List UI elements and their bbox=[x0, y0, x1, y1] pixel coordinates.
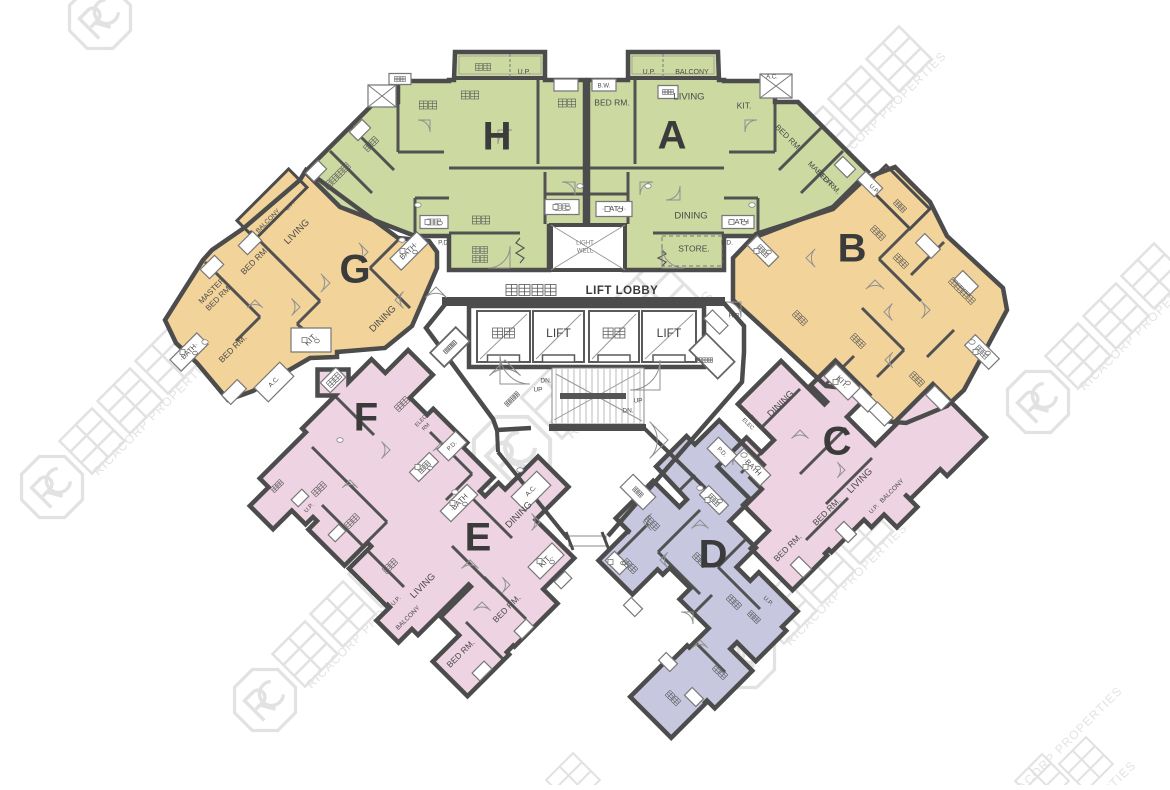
svg-text:LIFT: LIFT bbox=[657, 326, 682, 340]
svg-text:D: D bbox=[699, 533, 728, 577]
svg-text:E: E bbox=[465, 516, 492, 560]
svg-text:F: F bbox=[354, 396, 378, 440]
svg-text:STORE.: STORE. bbox=[678, 243, 710, 253]
svg-text:LIGHT: LIGHT bbox=[576, 241, 594, 247]
svg-text:WELL: WELL bbox=[577, 249, 594, 255]
svg-text:B.W.: B.W. bbox=[598, 84, 611, 90]
svg-text:LIFT LOBBY: LIFT LOBBY bbox=[586, 285, 659, 297]
svg-text:DN.: DN. bbox=[622, 408, 633, 415]
svg-text:UP: UP bbox=[633, 398, 642, 405]
svg-text:H: H bbox=[483, 115, 512, 159]
svg-text:P.D.: P.D. bbox=[438, 240, 450, 247]
svg-text:KIT.: KIT. bbox=[737, 100, 752, 110]
svg-text:DINING: DINING bbox=[674, 211, 707, 222]
svg-text:LIVING: LIVING bbox=[673, 92, 704, 103]
svg-text:DN.: DN. bbox=[540, 378, 551, 385]
svg-text:A.C.: A.C. bbox=[766, 75, 778, 81]
svg-text:U.P.: U.P. bbox=[643, 69, 656, 76]
svg-text:H.R.: H.R. bbox=[729, 313, 742, 320]
svg-text:G: G bbox=[339, 248, 370, 292]
svg-text:C: C bbox=[823, 420, 852, 464]
svg-text:B: B bbox=[838, 227, 867, 271]
svg-text:P.D.: P.D. bbox=[721, 240, 733, 247]
svg-text:UP: UP bbox=[533, 387, 542, 394]
svg-text:BED RM.: BED RM. bbox=[594, 97, 629, 107]
svg-text:BALCONY: BALCONY bbox=[675, 69, 709, 76]
svg-text:LIFT: LIFT bbox=[546, 326, 571, 340]
svg-text:A: A bbox=[658, 114, 687, 158]
svg-text:U.P.: U.P. bbox=[518, 69, 531, 76]
